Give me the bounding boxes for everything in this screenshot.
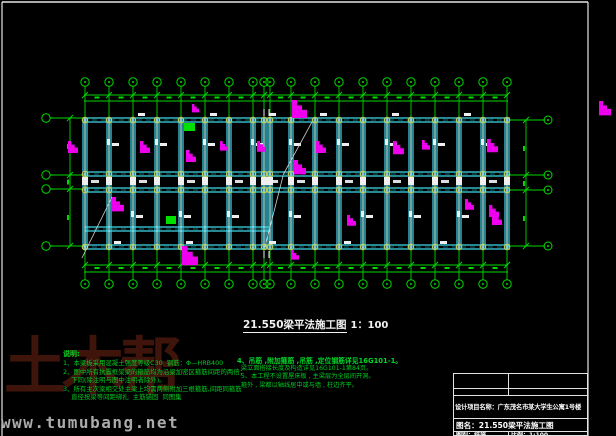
notes-right-column: 4、吊筋 ,附加箍筋 ,吊筋 ,定位钢筋详见16G101-1。 梁立面搭接长度及…: [237, 357, 402, 390]
title-block-empty-row-2: [454, 389, 587, 396]
title-block-bottom-row: 图别：结施 比例：1:100: [454, 432, 587, 436]
title-block-drawing-name: 图名：21.550梁平法施工图: [454, 419, 587, 432]
drawing-title: 21.550梁平法施工图1：100: [243, 316, 388, 332]
notes-heading: 说明:: [63, 349, 246, 359]
notes-line: 5、本工程不设置屋床板 , 主梁层为全层间开洞。: [237, 373, 402, 381]
general-notes: 说明: 1、本梁板采用混凝土强度等级C30 钢筋：Φ—HRB4002、图中所有抗…: [63, 349, 246, 402]
title-block: 设计项目名称：广东茂名市某大学生公寓1号楼 图名：21.550梁平法施工图 图别…: [453, 373, 588, 436]
title-block-cell: [509, 374, 587, 388]
notes-line: 箍外 , 梁都以轴线居中或与墙 , 柱边齐平。: [237, 382, 402, 390]
title-block-cell: [454, 374, 509, 388]
notes-line: 1、本梁板采用混凝土强度等级C30 钢筋：Φ—HRB400: [63, 359, 246, 368]
title-block-cell: [454, 389, 509, 395]
title-block-empty-row-1: [454, 374, 587, 389]
title-block-cell: [509, 389, 587, 395]
title-block-sheet-type: 图别：结施: [454, 432, 509, 436]
cad-application-window: 21.550梁平法施工图1：100 土木帮 www.tumubang.net 说…: [0, 0, 616, 436]
drawing-title-scale: 1：100: [351, 320, 389, 331]
notes-left-column: 1、本梁板采用混凝土强度等级C30 钢筋：Φ—HRB4002、图中所有抗震框架梁…: [63, 359, 246, 402]
title-block-scale: 比例：1:100: [509, 432, 587, 436]
watermark-url: www.tumubang.net: [1, 413, 179, 432]
notes-line: 2、图中所有抗震框架梁的箍筋均为沿梁加密区箍筋间距的两倍；: [63, 368, 246, 377]
notes-line: 4、吊筋 ,附加箍筋 ,吊筋 ,定位钢筋详见16G101-1。: [237, 357, 402, 365]
title-block-project-name: 设计项目名称：广东茂名市某大学生公寓1号楼: [454, 396, 587, 419]
notes-line: 下同(除注明与图中注明者除外)。: [63, 376, 246, 385]
notes-line: 直径按梁等间距绑扎 主筋锚固 同图集: [63, 393, 246, 402]
drawing-title-text: 21.550梁平法施工图: [243, 319, 347, 333]
